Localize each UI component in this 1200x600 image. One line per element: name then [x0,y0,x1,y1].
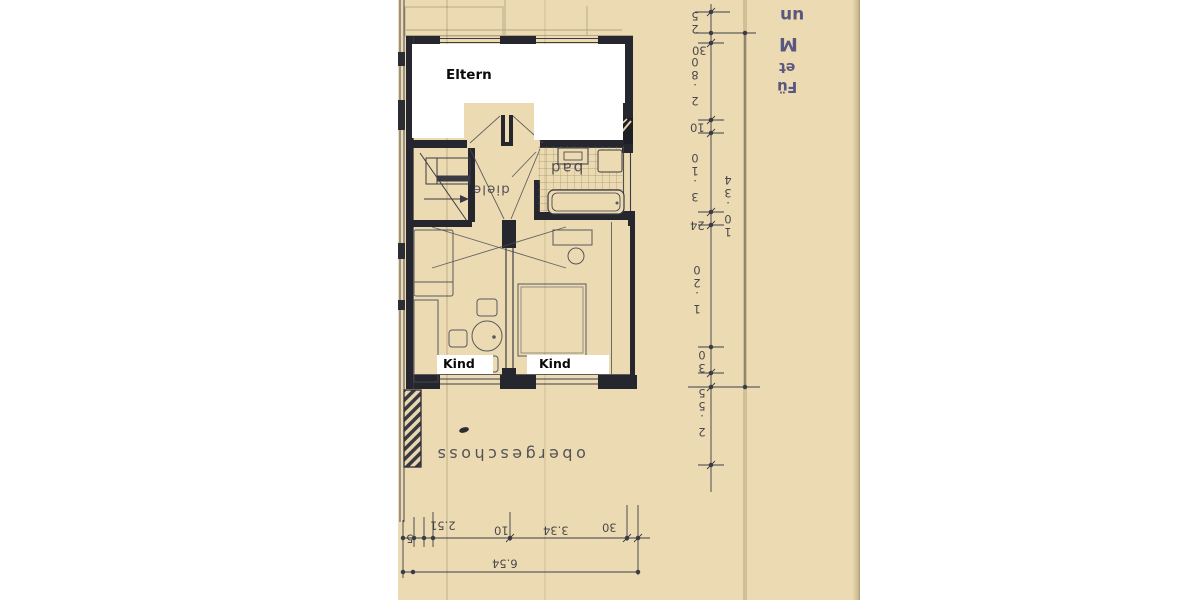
bathtub [548,190,624,214]
dim-right-3: 10 [690,121,705,133]
furniture-right-room [518,202,619,357]
dim-right-6: 1.20 [692,268,704,316]
room-label-eltern: Eltern [446,69,492,83]
bed-right [518,284,586,356]
dim-bottom-total: 6.54 [492,557,518,569]
chair [477,299,497,316]
blue-note-line-2: M [779,34,798,53]
dim-right-4: 3.10 [690,150,702,204]
dim-bottom-1: 5 [406,532,413,544]
scanned-floor-plan: Eltern Kind Kind bad diele obergeschoss … [0,0,1200,600]
dim-bottom-4: 30 [602,521,617,533]
room-label-diele: diele [472,182,510,196]
room-label-kind-left: Kind [437,355,493,374]
right-white-margin [860,0,1200,600]
lower-wall-stub [404,390,421,467]
dim-right-7: 30 [697,349,709,375]
dim-right-1: 30 [692,44,707,56]
desk [553,230,592,245]
left-white-margin [0,0,398,600]
round-table [472,321,502,351]
dim-bottom-2: 10 [494,524,509,536]
toilet [598,150,622,172]
floor-title: obergeschoss [434,446,586,462]
dim-right-total: 10.34 [723,183,735,239]
bathroom-fixtures [538,146,624,214]
stool [568,248,584,264]
dimension-chain-bottom [401,505,650,578]
redaction-box-eltern-right [534,99,623,140]
room-label-kind-right: Kind [527,355,609,374]
dim-right-0: 25 [690,6,702,36]
room-label-bad: bad [549,160,583,175]
blue-note-line-3: et [779,60,795,74]
construction-lines [405,0,633,36]
wardrobe [414,300,438,382]
staircase [420,153,470,221]
kids-divider-wall [506,248,513,368]
redaction-box-eltern-left [412,99,464,138]
dim-right-2: 2.80 [690,56,702,108]
blue-note-line-4: Fü [777,79,797,94]
redaction-box-eltern [412,44,625,103]
dim-bottom-3: 3.34 [543,524,569,536]
chair [449,330,467,347]
dim-bottom-0: 2.51 [430,519,456,531]
ink-blot [458,426,469,434]
dim-right-5: 24 [690,219,705,231]
blue-note-line-1: un [780,6,804,23]
dim-right-8: 2.55 [697,395,709,439]
